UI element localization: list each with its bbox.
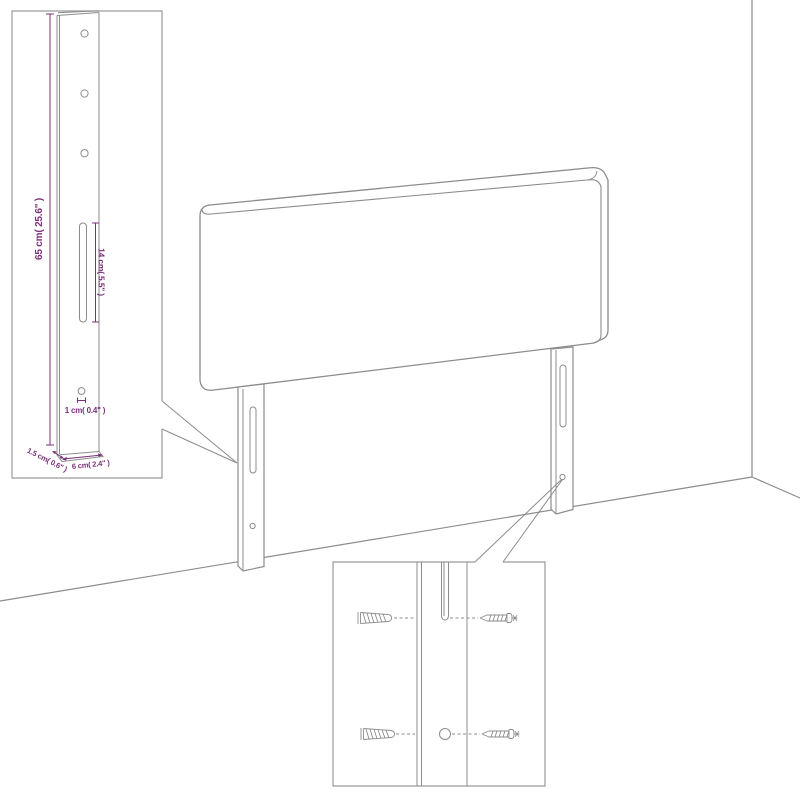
leg-hole-3 [81, 150, 88, 157]
leg-right-slot [560, 365, 566, 427]
dim-label-1cm: 1 cm( 0.4" ) [65, 406, 106, 415]
leg-hole-1 [81, 30, 88, 37]
screw-icon [482, 730, 520, 739]
dimension-labels: 65 cm( 25.6" ) 14 cm( 5.5" ) 1 cm( 0.4" … [26, 198, 111, 474]
leg-right-hole [560, 474, 565, 479]
callout-line [503, 480, 563, 563]
leg-right [551, 347, 573, 514]
floor-edge-left [0, 477, 752, 601]
inset-mounting-detail [333, 480, 563, 787]
strip-slot [442, 562, 449, 620]
dim-label-14cm: 14 cm( 5.5" ) [97, 248, 107, 296]
dimension-lines [46, 14, 102, 459]
leg-front-view [57, 11, 103, 462]
wall-plug-icon [361, 728, 395, 740]
leg-strip-closeup [417, 562, 467, 786]
strip-hole [440, 729, 451, 740]
dim-label-1-5cm: 1.5 cm( 0.6" ) [26, 446, 70, 474]
leg-left-hole [250, 523, 255, 528]
callout-line [162, 401, 237, 463]
screw-icon [480, 614, 518, 623]
leg-hole-4 [78, 388, 85, 395]
wall-plug-icon [358, 612, 392, 624]
dim-label-65cm: 65 cm( 25.6" ) [34, 198, 45, 260]
leg-left [238, 384, 264, 571]
headboard-panel-face [200, 168, 608, 391]
callout-line [162, 429, 237, 463]
product-diagram: 65 cm( 25.6" ) 14 cm( 5.5" ) 1 cm( 0.4" … [0, 0, 800, 800]
floor-edge-right [752, 477, 800, 498]
inset-mounting-border [333, 562, 545, 786]
leg-left-slot [250, 407, 256, 473]
callout-wedge-leg [162, 401, 237, 463]
diagram-canvas: 65 cm( 25.6" ) 14 cm( 5.5" ) 1 cm( 0.4" … [0, 0, 800, 800]
leg-hole-2 [81, 90, 88, 97]
leg-slot-front [80, 223, 87, 322]
